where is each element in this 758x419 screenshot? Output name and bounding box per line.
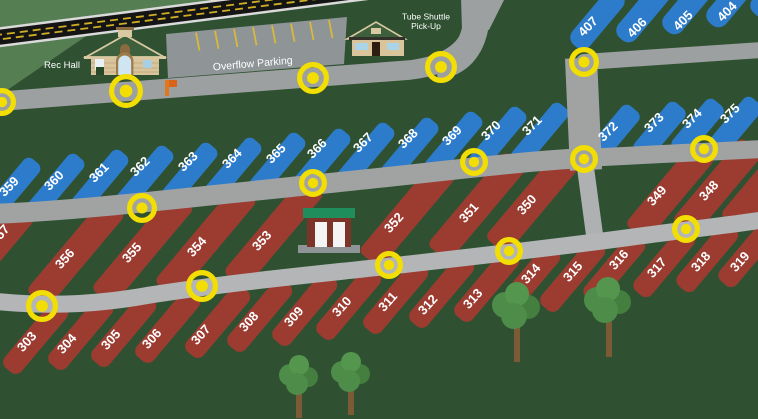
svg-text:Pick-Up: Pick-Up (411, 21, 441, 31)
svg-text:Tube Shuttle: Tube Shuttle (402, 12, 450, 22)
svg-text:Rec Hall: Rec Hall (44, 60, 80, 71)
